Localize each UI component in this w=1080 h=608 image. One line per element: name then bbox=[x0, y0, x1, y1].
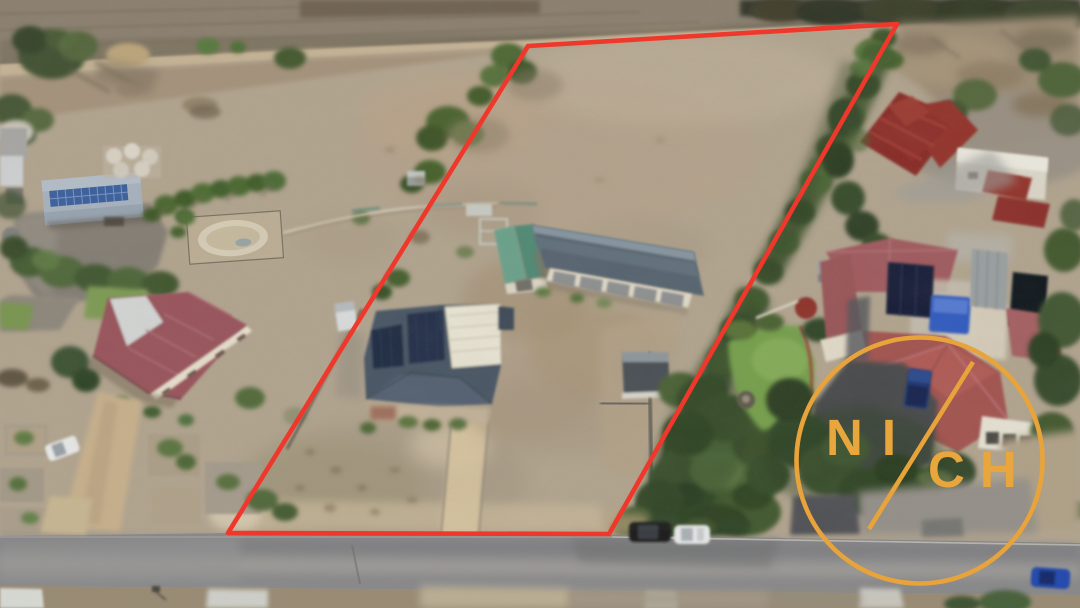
svg-text:NI: NI bbox=[826, 409, 915, 466]
svg-text:CH: CH bbox=[928, 441, 1032, 498]
